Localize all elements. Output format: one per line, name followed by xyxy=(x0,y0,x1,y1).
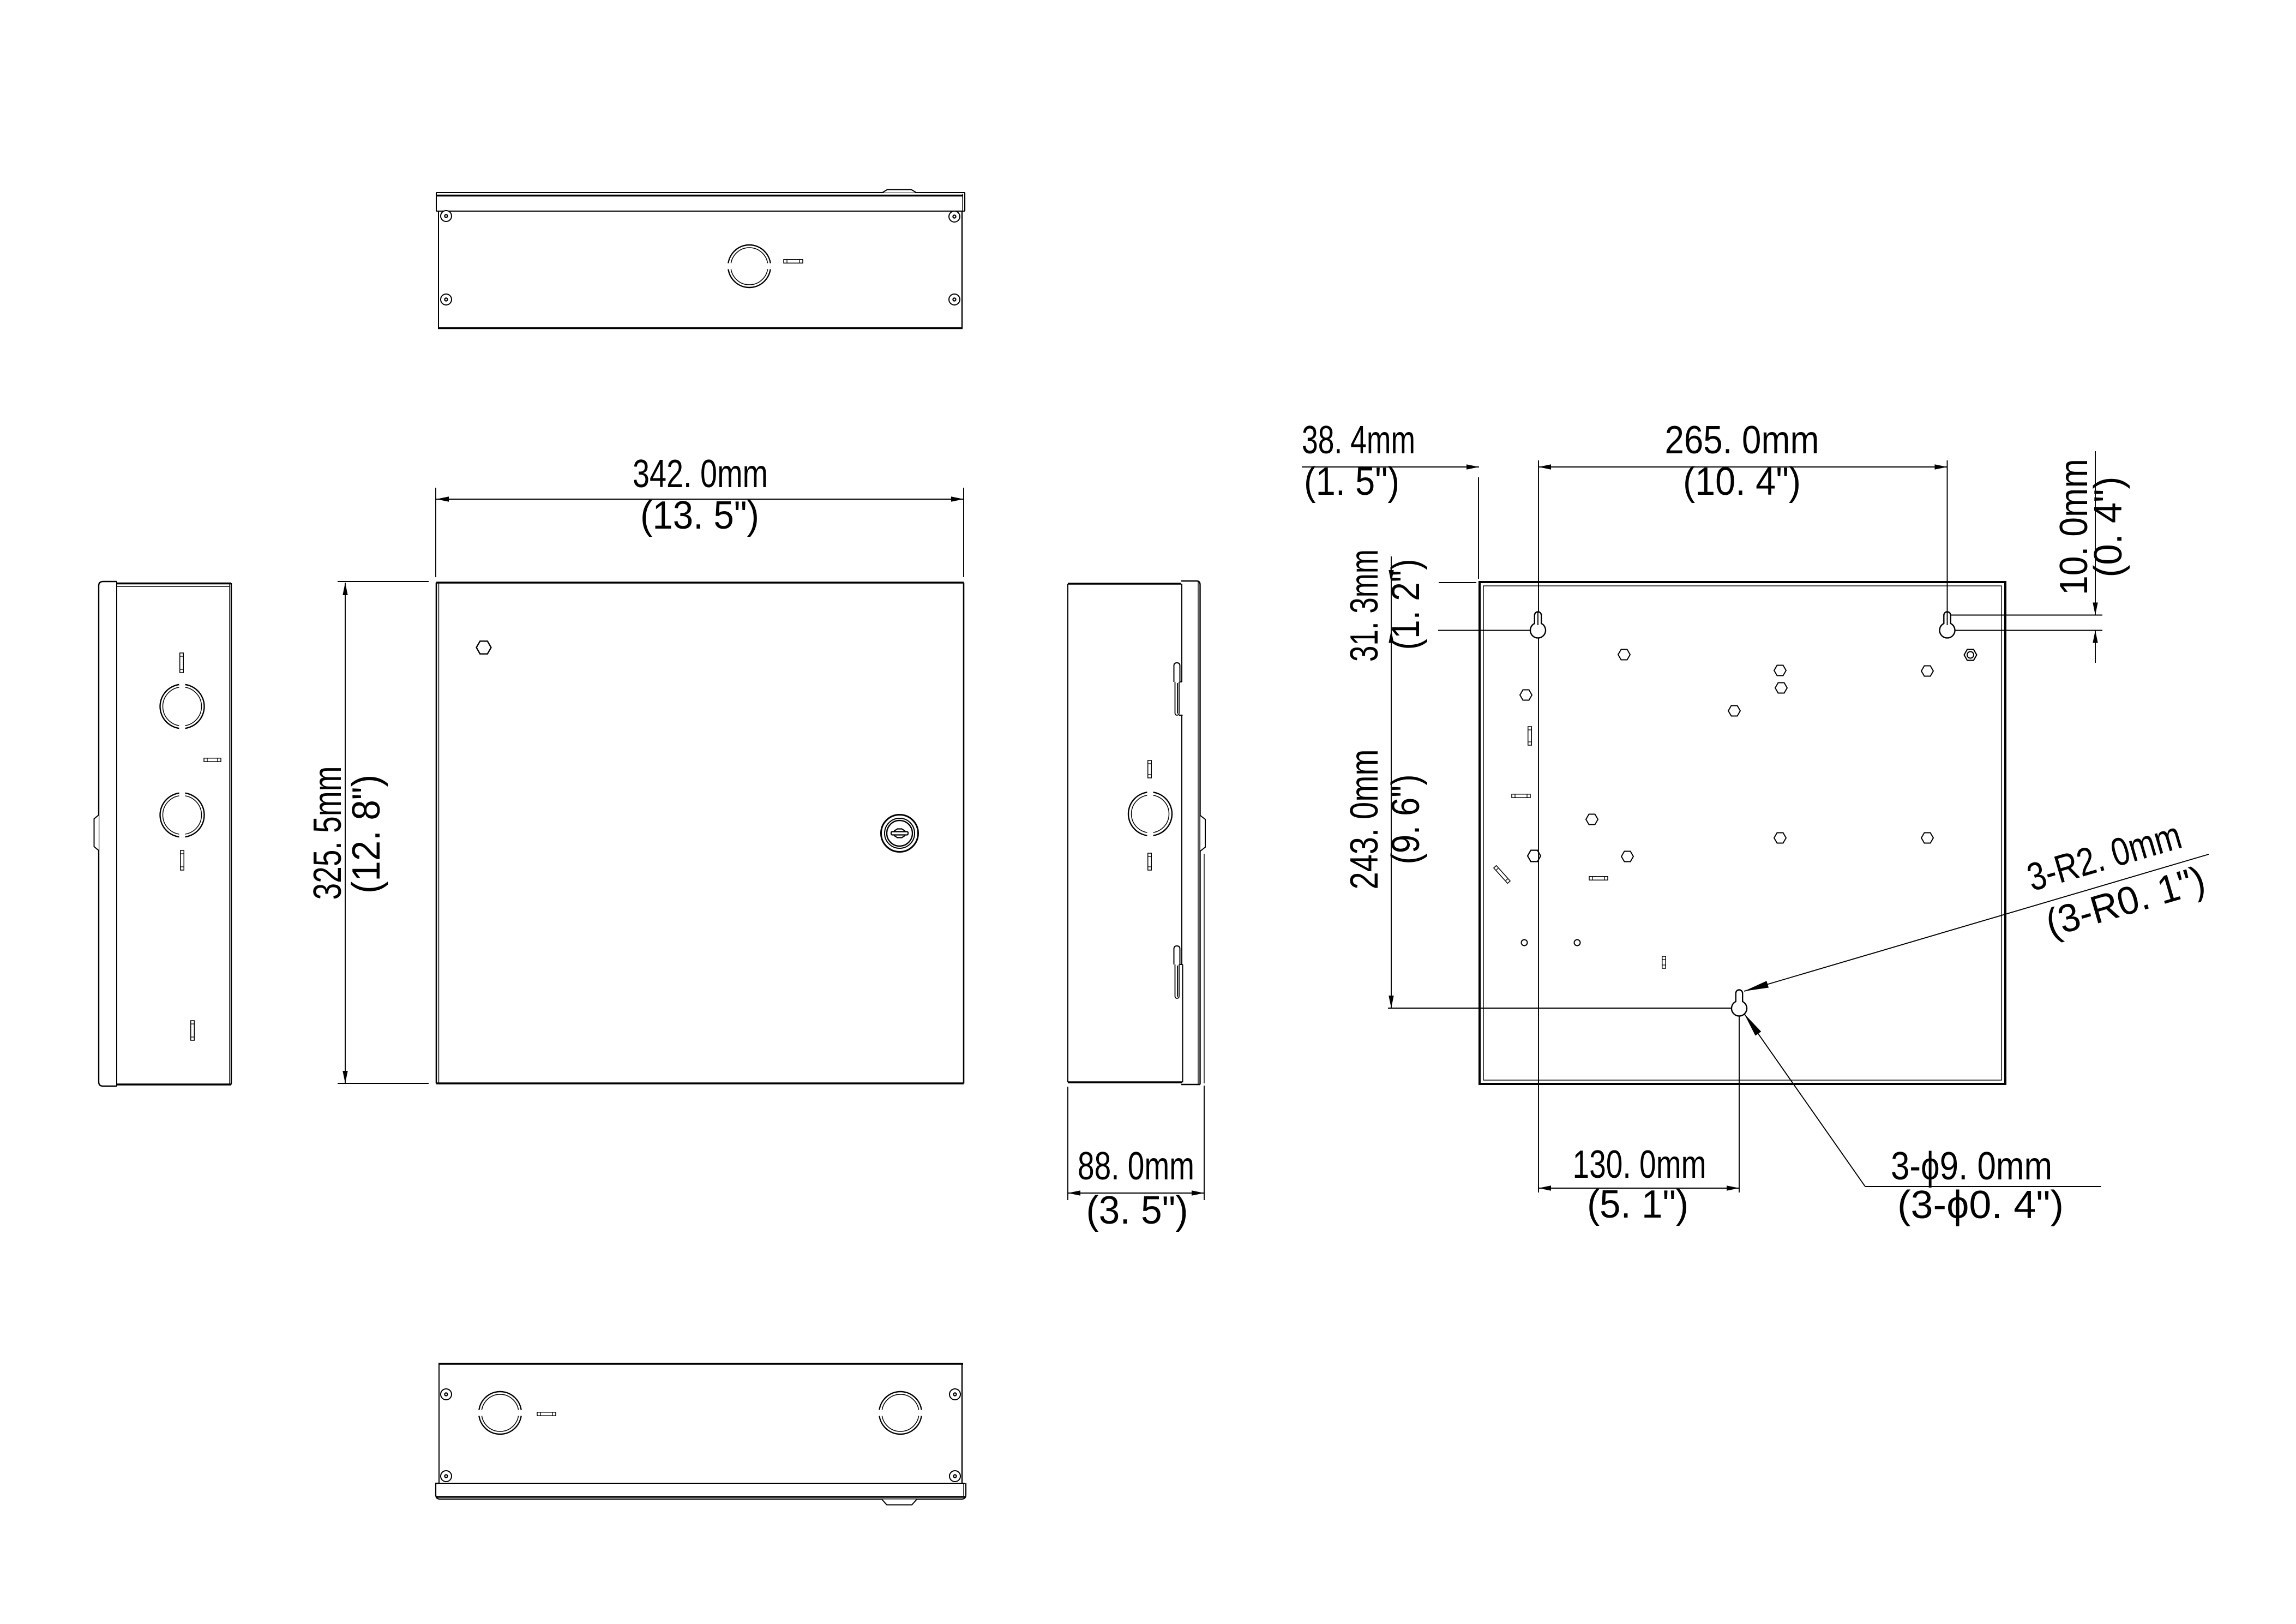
svg-text:(3-ϕ0. 4"): (3-ϕ0. 4") xyxy=(1897,1183,2064,1227)
svg-text:(0. 4"): (0. 4") xyxy=(2087,477,2130,578)
svg-text:(9. 6"): (9. 6") xyxy=(1384,775,1428,865)
svg-text:3-ϕ9. 0mm: 3-ϕ9. 0mm xyxy=(1891,1144,2052,1188)
svg-text:265. 0mm: 265. 0mm xyxy=(1665,418,1819,462)
svg-text:88. 0mm: 88. 0mm xyxy=(1078,1144,1194,1188)
svg-text:130. 0mm: 130. 0mm xyxy=(1573,1143,1706,1186)
svg-text:342. 0mm: 342. 0mm xyxy=(633,452,768,496)
svg-text:325. 5mm: 325. 5mm xyxy=(306,766,350,900)
svg-text:(10. 4"): (10. 4") xyxy=(1683,460,1801,504)
svg-text:243. 0mm: 243. 0mm xyxy=(1343,750,1386,890)
svg-text:38. 4mm: 38. 4mm xyxy=(1302,418,1415,462)
svg-text:(3. 5"): (3. 5") xyxy=(1086,1189,1188,1232)
svg-text:(5. 1"): (5. 1") xyxy=(1587,1183,1688,1226)
svg-text:(12. 8"): (12. 8") xyxy=(345,775,388,894)
svg-text:(13. 5"): (13. 5") xyxy=(640,494,759,537)
svg-text:(1. 2"): (1. 2") xyxy=(1384,559,1428,650)
svg-text:(1. 5"): (1. 5") xyxy=(1304,460,1399,504)
svg-text:31. 3mm: 31. 3mm xyxy=(1343,549,1386,662)
